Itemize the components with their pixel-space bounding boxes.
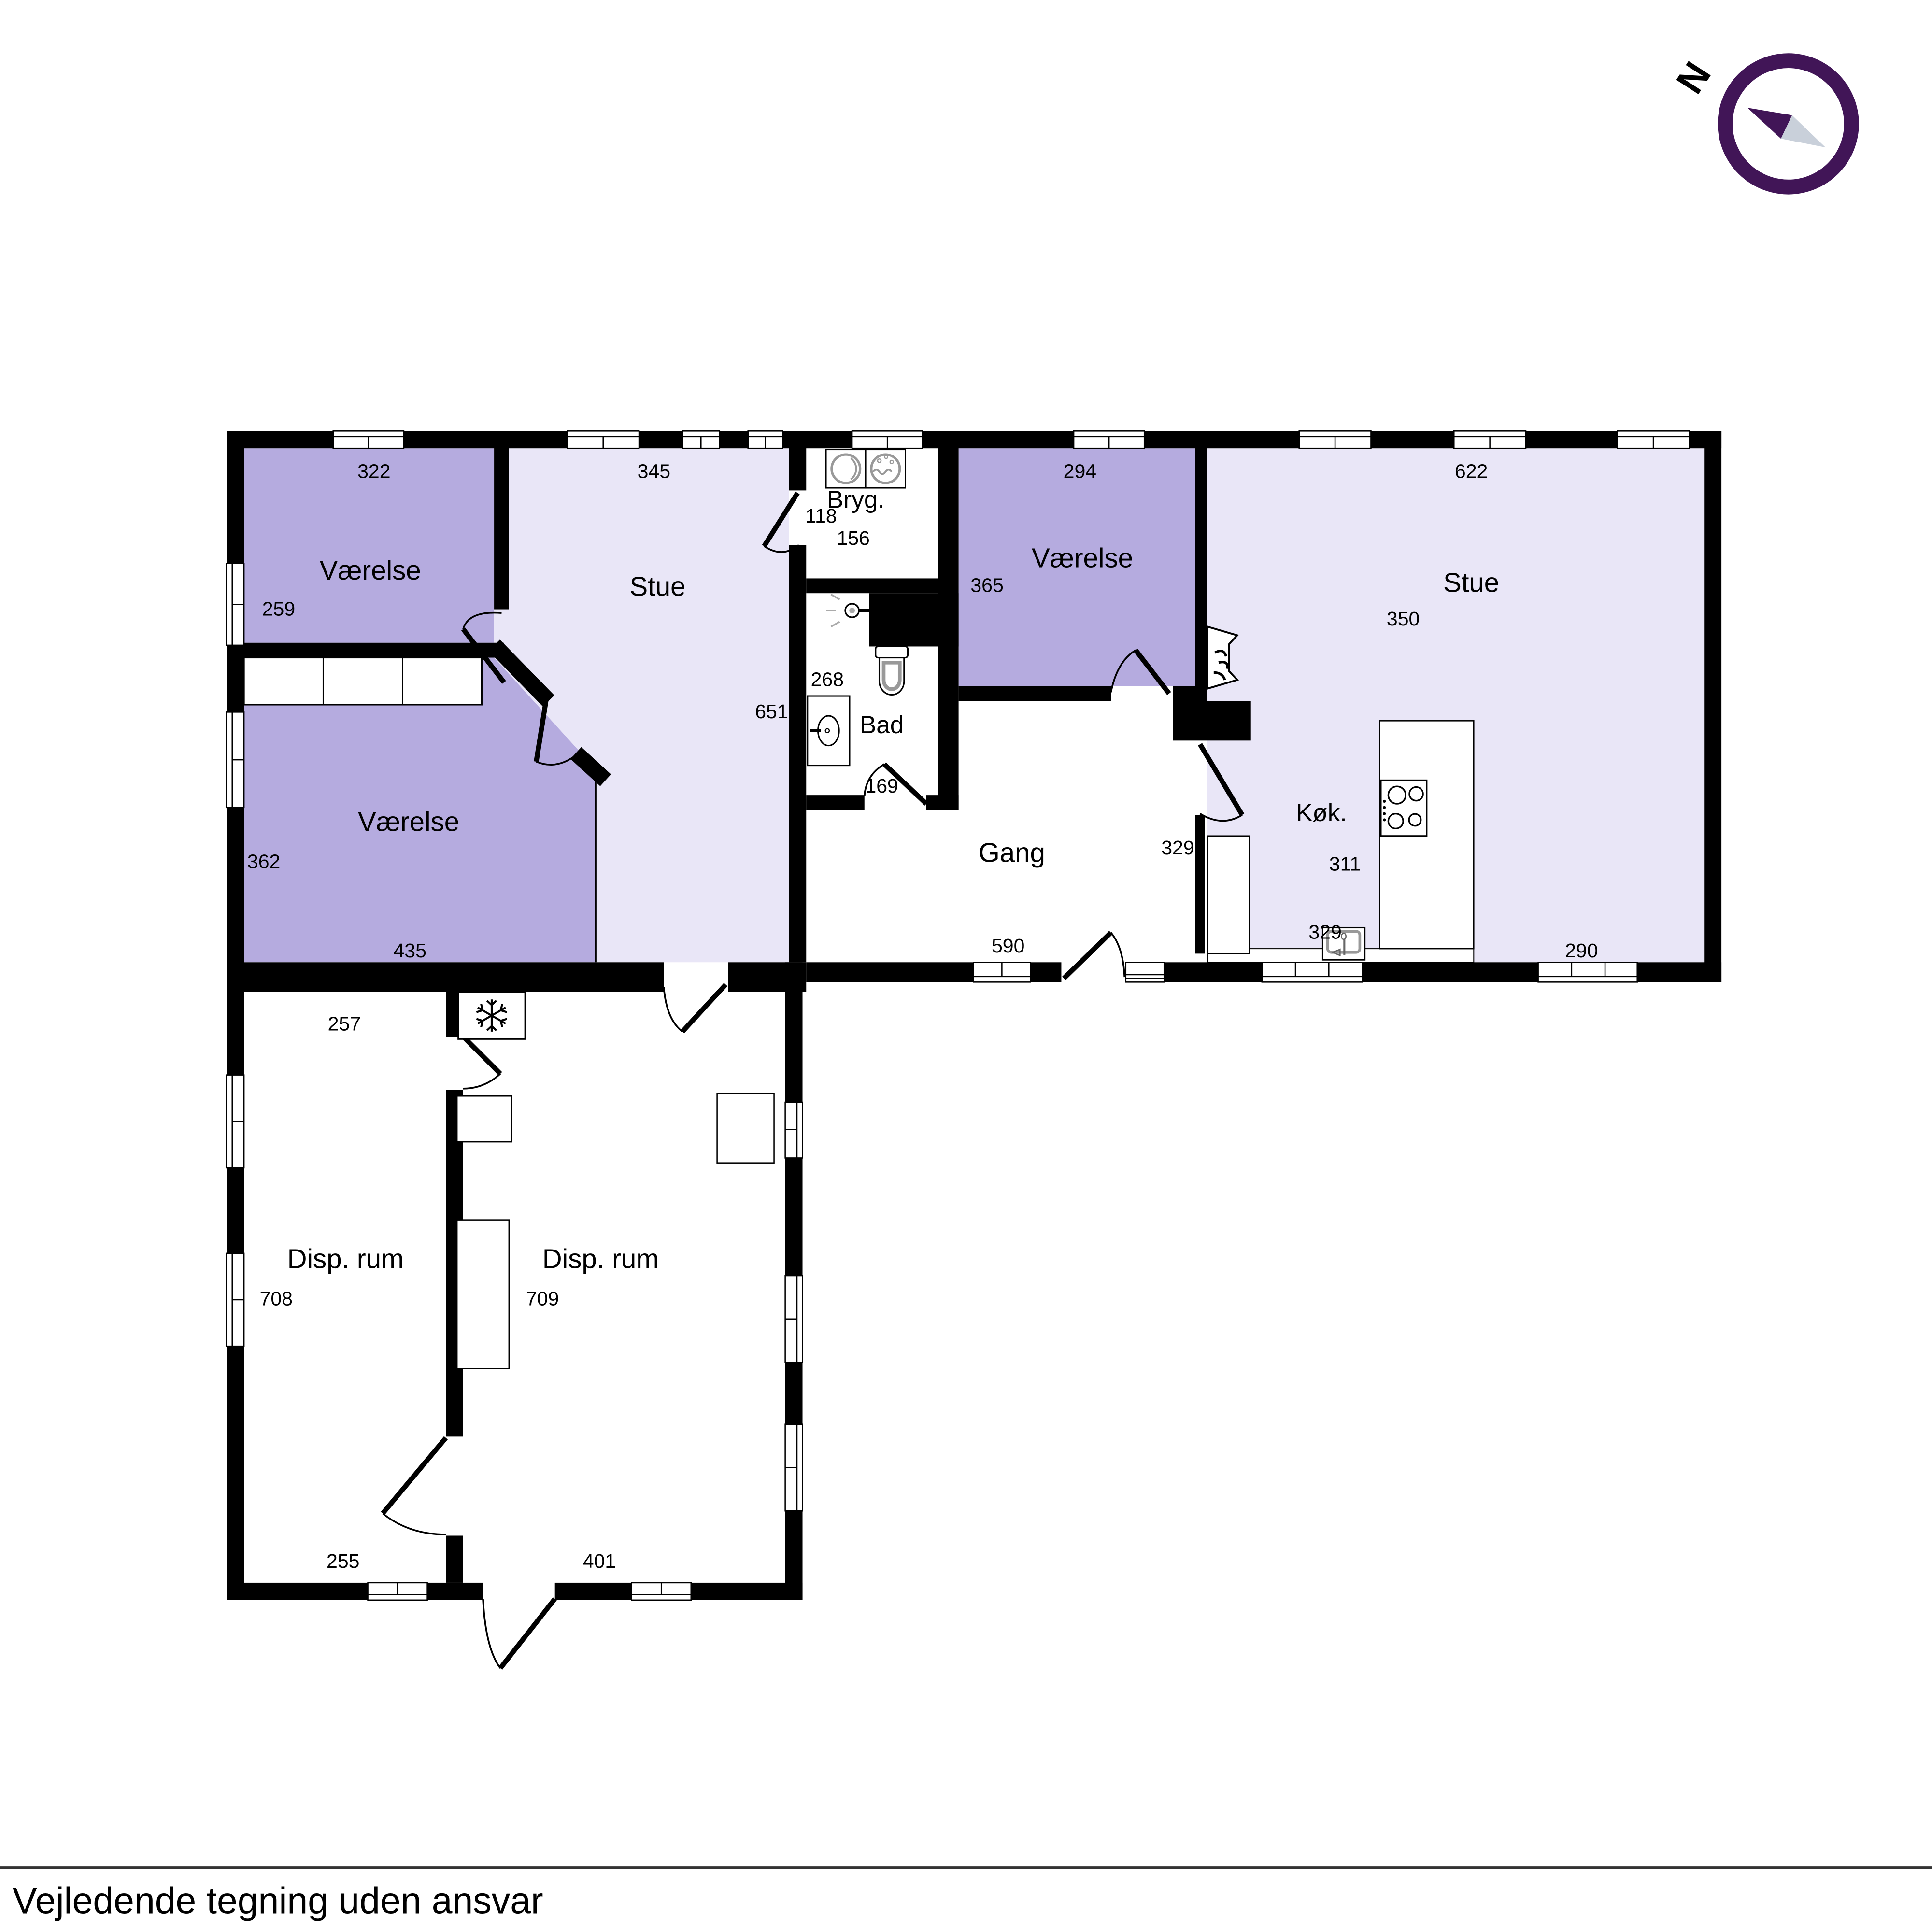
dim-vaerelse-w-width: 435: [393, 939, 426, 962]
wall-corner-chunk-a: [1173, 686, 1207, 741]
wall-vaerelse-mid-bottom: [959, 686, 1111, 701]
dim-bryg-height: 118: [805, 505, 837, 527]
dim-koek-wall: 329: [1161, 837, 1194, 859]
label-stue-right: Stue: [1443, 568, 1499, 598]
compass-north-label: N: [1668, 54, 1719, 101]
dim-gang-width: 590: [992, 935, 1024, 957]
compass-icon: N: [1668, 54, 1851, 187]
wall-stue-bryg-b: [789, 545, 806, 962]
dim-bad-height: 268: [811, 668, 844, 691]
wall-bryg-vaerelse: [938, 431, 959, 810]
shelf-box-tall: [457, 1220, 509, 1369]
label-disp-right: Disp. rum: [542, 1244, 659, 1274]
dim-bryg-width: 156: [837, 527, 869, 549]
room-floor-gang-upper: [959, 701, 1173, 810]
wall-koek-gang: [1195, 815, 1205, 953]
dim-stue-right-width-b: 290: [1565, 939, 1598, 962]
dim-disp-left-top: 257: [328, 1012, 361, 1035]
label-vaerelse-nw: Værelse: [320, 555, 421, 585]
label-disp-left: Disp. rum: [287, 1244, 404, 1274]
wall-right: [1704, 431, 1721, 982]
dim-vaerelse-nw-height: 259: [262, 597, 295, 620]
wall-disp-bottom-a: [227, 1583, 483, 1600]
dim-vaerelse-mid-height: 365: [970, 574, 1003, 597]
dim-bad-door: 169: [865, 775, 898, 797]
footer: Vejledende tegning uden ansvar: [0, 1868, 1932, 1922]
wall-stue-bryg-a: [789, 431, 806, 490]
dim-vaerelse-w-height: 362: [247, 850, 280, 872]
wall-vaerelse-stue-right: [1195, 431, 1207, 686]
dim-disp-left-bottom: 255: [327, 1550, 359, 1572]
room-floor-disp: [244, 992, 785, 1583]
wall-corner-chunk-b: [1207, 701, 1251, 740]
label-bad: Bad: [860, 711, 904, 739]
wall-mid-left-a: [227, 962, 664, 992]
toilet-icon: [876, 646, 908, 695]
wardrobe: [244, 658, 482, 705]
stove-icon: [1381, 780, 1427, 836]
floor-plan: 322 Værelse 259 345 Stue 651 Værelse 362…: [0, 0, 1932, 1932]
dim-stue-left-height: 651: [755, 700, 788, 723]
label-gang: Gang: [979, 838, 1045, 868]
wall-bad-bottom-a: [806, 795, 865, 810]
kitchen-counter: [1207, 836, 1250, 954]
label-koek: Køk.: [1296, 799, 1347, 826]
window-sill-box: [717, 1094, 774, 1163]
bathroom-sink-icon: [808, 696, 850, 766]
footer-disclaimer: Vejledende tegning uden ansvar: [13, 1880, 543, 1922]
dim-vaerelse-nw-width: 322: [357, 460, 390, 483]
label-stue-left: Stue: [630, 571, 686, 601]
dim-vaerelse-mid-width: 294: [1064, 460, 1096, 483]
washing-machine-icon: [866, 450, 905, 488]
shelf-box: [457, 1096, 511, 1142]
dim-koek-width: 311: [1329, 853, 1361, 875]
dim-disp-left-height: 708: [260, 1288, 293, 1310]
label-vaerelse-mid: Værelse: [1032, 542, 1133, 573]
wall-vaerelse-divider: [244, 643, 504, 658]
wall-vaerelse-stue: [494, 431, 509, 609]
wall-bryg-bad: [806, 578, 938, 593]
dim-koek-depth: 329: [1308, 921, 1341, 943]
wall-partition-c: [446, 1535, 463, 1582]
tumble-dryer-icon: [826, 450, 866, 488]
dim-stue-right-height: 350: [1387, 608, 1420, 630]
freezer-icon: [458, 992, 525, 1039]
dim-disp-right-bottom: 401: [583, 1550, 616, 1572]
label-vaerelse-w: Værelse: [358, 807, 459, 837]
dim-stue-left-width: 345: [638, 460, 670, 483]
dim-disp-right-height: 709: [526, 1288, 559, 1310]
dim-stue-right-width: 622: [1455, 460, 1488, 483]
